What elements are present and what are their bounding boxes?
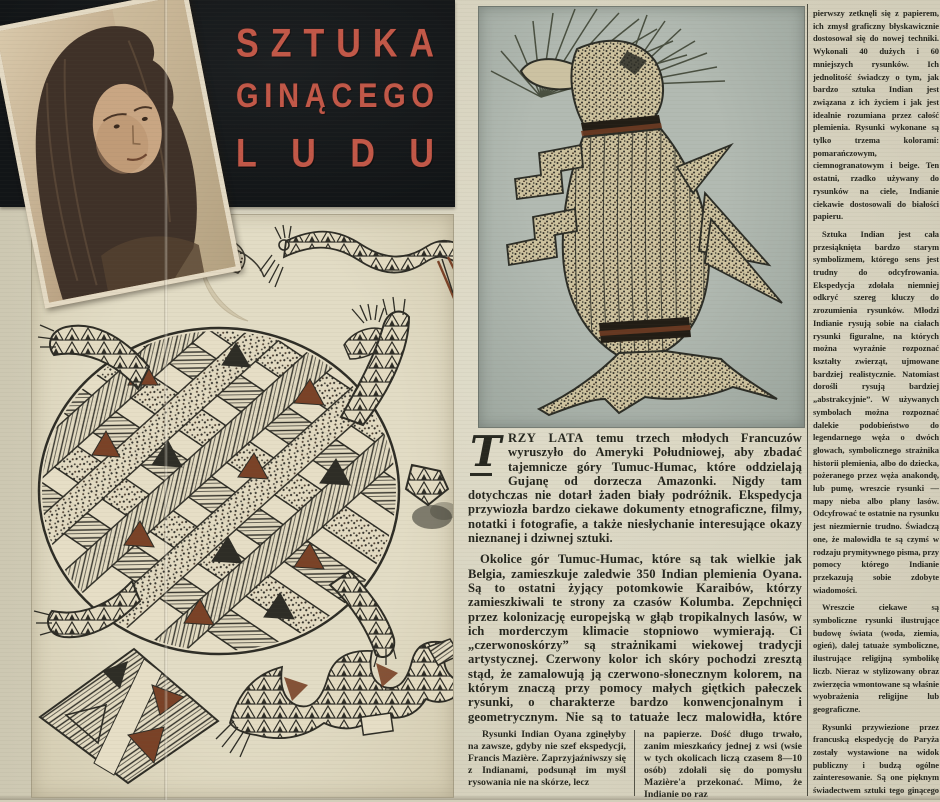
bird-head <box>571 41 663 127</box>
bird-tail <box>539 351 777 415</box>
dropcap-T: T <box>470 434 504 476</box>
lead-in-words: RZY LATA <box>508 431 584 445</box>
sidebar-divider <box>807 4 808 796</box>
magazine-page: SZTUKA GINĄCEGO LUDU <box>0 0 940 800</box>
bottom-right-text: na papierze. Dość długo trwało, zanim mi… <box>644 729 802 797</box>
bottom-left-text: Rysunki Indian Oyana zginęłyby na zawsze… <box>468 729 626 789</box>
sidebar-paragraph-1: pierwszy zetknęli się z papierem, ich zm… <box>813 7 939 223</box>
title-line-2: GINĄCEGO <box>236 77 434 138</box>
second-paragraph: Okolice gór Tumuc-Humac, które są tak wi… <box>468 552 802 726</box>
title-line-1: SZTUKA <box>236 21 434 85</box>
bird-drawing <box>479 7 804 427</box>
bottom-columns: Rysunki Indian Oyana zginęłyby na zawsze… <box>468 729 802 797</box>
page-title: SZTUKA GINĄCEGO LUDU <box>236 20 434 188</box>
sidebar-column: pierwszy zetknęli się z papierem, ich zm… <box>813 7 939 797</box>
left-artwork-panel <box>31 214 454 798</box>
snake-figure <box>260 225 453 303</box>
bottom-column-left: Rysunki Indian Oyana zginęłyby na zawsze… <box>468 729 626 797</box>
article-main-column: TRZY LATA temu trzech młodych Francuzów … <box>468 431 802 726</box>
column-divider <box>634 730 635 796</box>
lead-text: temu trzech młodych Francuzów wyruszyło … <box>468 431 802 545</box>
zigzag-snake-figure <box>216 639 453 757</box>
sidebar-paragraph-4: Rysunki przywiezione przez francuską eks… <box>813 721 939 797</box>
sidebar-paragraph-3: Wreszcie ciekawe są symboliczne rysunki … <box>813 601 939 715</box>
turtle-drawing <box>32 215 453 797</box>
lead-paragraph: TRZY LATA temu trzech młodych Francuzów … <box>468 431 802 545</box>
bird-artwork-panel <box>478 6 805 428</box>
bottom-column-right: na papierze. Dość długo trwało, zanim mi… <box>644 729 802 797</box>
sidebar-paragraph-2: Sztuka Indian jest cała przesiąknięta ba… <box>813 228 939 596</box>
diamond-figure <box>40 649 218 783</box>
title-line-3: LUDU <box>236 131 434 192</box>
